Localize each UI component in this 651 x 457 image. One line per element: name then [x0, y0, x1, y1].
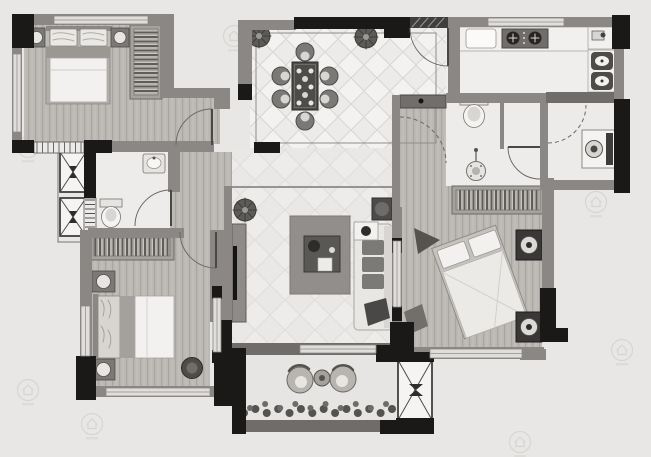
wall	[546, 92, 614, 103]
watermark-icon	[82, 414, 103, 440]
tv-cabinet	[232, 224, 246, 322]
wall	[396, 352, 434, 362]
wall	[520, 349, 546, 360]
wall	[232, 348, 246, 414]
wall	[12, 140, 34, 153]
vent-shaft	[398, 360, 432, 420]
window-master-bottom	[430, 349, 522, 358]
wall	[294, 17, 386, 29]
wall	[614, 49, 624, 101]
watermark-icon	[18, 380, 39, 406]
wall	[246, 420, 380, 432]
wall	[396, 418, 434, 434]
window-bedroom1-left	[13, 54, 21, 132]
elevator-shafts	[58, 150, 88, 242]
stairs	[84, 198, 96, 232]
sink-bathroom	[143, 154, 165, 173]
wall	[212, 286, 222, 299]
wardrobe-bedroom1	[130, 25, 162, 99]
wall	[84, 140, 112, 153]
wall	[540, 288, 556, 330]
hall-floor	[232, 148, 402, 188]
window-bedroom1-top	[54, 16, 148, 24]
wall	[232, 412, 246, 434]
wall	[392, 306, 402, 321]
opening-master-left	[393, 241, 401, 307]
wall	[88, 228, 184, 238]
wall	[214, 95, 230, 109]
wall	[612, 15, 630, 49]
floor-plan-svg	[0, 0, 651, 457]
wall	[540, 95, 548, 190]
wall	[254, 142, 280, 153]
wall	[252, 20, 296, 30]
wall	[446, 93, 548, 103]
floor-plan-page	[0, 0, 651, 457]
wall	[12, 14, 34, 48]
wall	[238, 84, 252, 100]
wall	[500, 95, 504, 149]
window-kitchen-top	[488, 18, 564, 26]
wall	[540, 328, 568, 342]
entry-door-leaf	[408, 17, 448, 28]
wall	[614, 99, 630, 193]
rug-coffee-table	[290, 216, 350, 294]
bed-bedroom2	[93, 294, 174, 358]
wall	[76, 356, 96, 400]
sliding-door-balcony	[300, 345, 376, 353]
wall	[238, 20, 252, 86]
shoe-cabinet	[400, 95, 446, 108]
wall	[110, 141, 214, 152]
wall	[84, 152, 96, 198]
louver-strip	[34, 142, 84, 153]
wall	[168, 152, 180, 192]
wall	[224, 186, 232, 232]
wall	[546, 180, 618, 190]
master-bath-floor	[446, 95, 542, 187]
wall	[160, 14, 174, 98]
wall	[542, 178, 554, 290]
window-bedroom2-interior	[213, 298, 221, 352]
wall	[384, 17, 410, 38]
toilet-bathroom	[100, 199, 122, 228]
window-bedroom2-bottom	[106, 388, 210, 396]
watermark-icon	[510, 432, 531, 457]
stool-bedroom2	[182, 358, 203, 379]
watermark-icon	[586, 192, 607, 218]
planter-square	[372, 198, 392, 220]
wall	[392, 95, 400, 217]
sofa-side-table	[354, 222, 378, 240]
wardrobe-master	[452, 186, 544, 214]
wall	[448, 17, 460, 97]
window-bedroom2-left	[81, 306, 90, 356]
watermark-icon	[612, 340, 633, 366]
washing-machine	[582, 130, 616, 168]
